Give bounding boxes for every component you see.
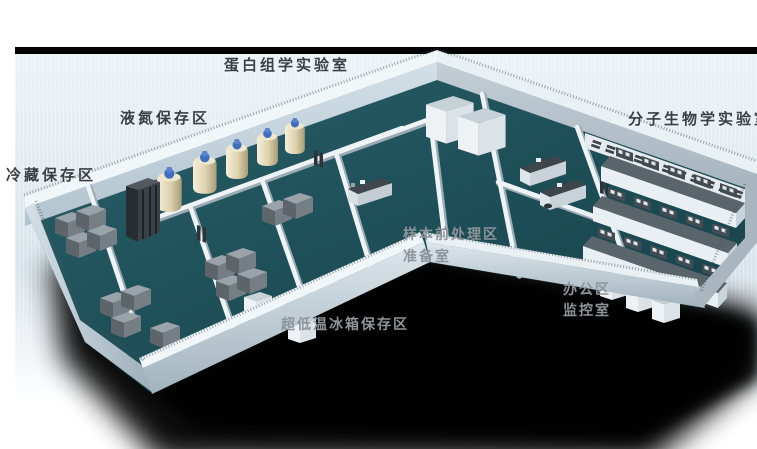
room-label-preparation-room: 准备室 xyxy=(403,250,451,265)
room-label-monitoring-room: 监控室 xyxy=(563,304,611,319)
room-label-liquid-nitrogen-storage: 液氮保存区 xyxy=(120,110,210,127)
room-label-sample-pretreatment: 样本前处理区 xyxy=(403,228,499,243)
lab-floorplan-scene: 蛋白组学实验室 液氮保存区 冷藏保存区 分子生物学实验室 样本前处理区 准备室 … xyxy=(0,0,757,449)
room-label-ult-freezer-storage: 超低温冰箱保存区 xyxy=(281,318,409,333)
storage-rack xyxy=(126,178,160,242)
building-3d-render xyxy=(0,0,757,449)
room-label-proteomics-lab: 蛋白组学实验室 xyxy=(224,57,350,74)
room-label-cold-storage: 冷藏保存区 xyxy=(6,167,96,184)
room-label-office-area: 办公区 xyxy=(563,283,611,298)
cabinet xyxy=(458,108,506,156)
room-label-molecular-biology-lab: 分子生物学实验室 xyxy=(628,111,757,128)
